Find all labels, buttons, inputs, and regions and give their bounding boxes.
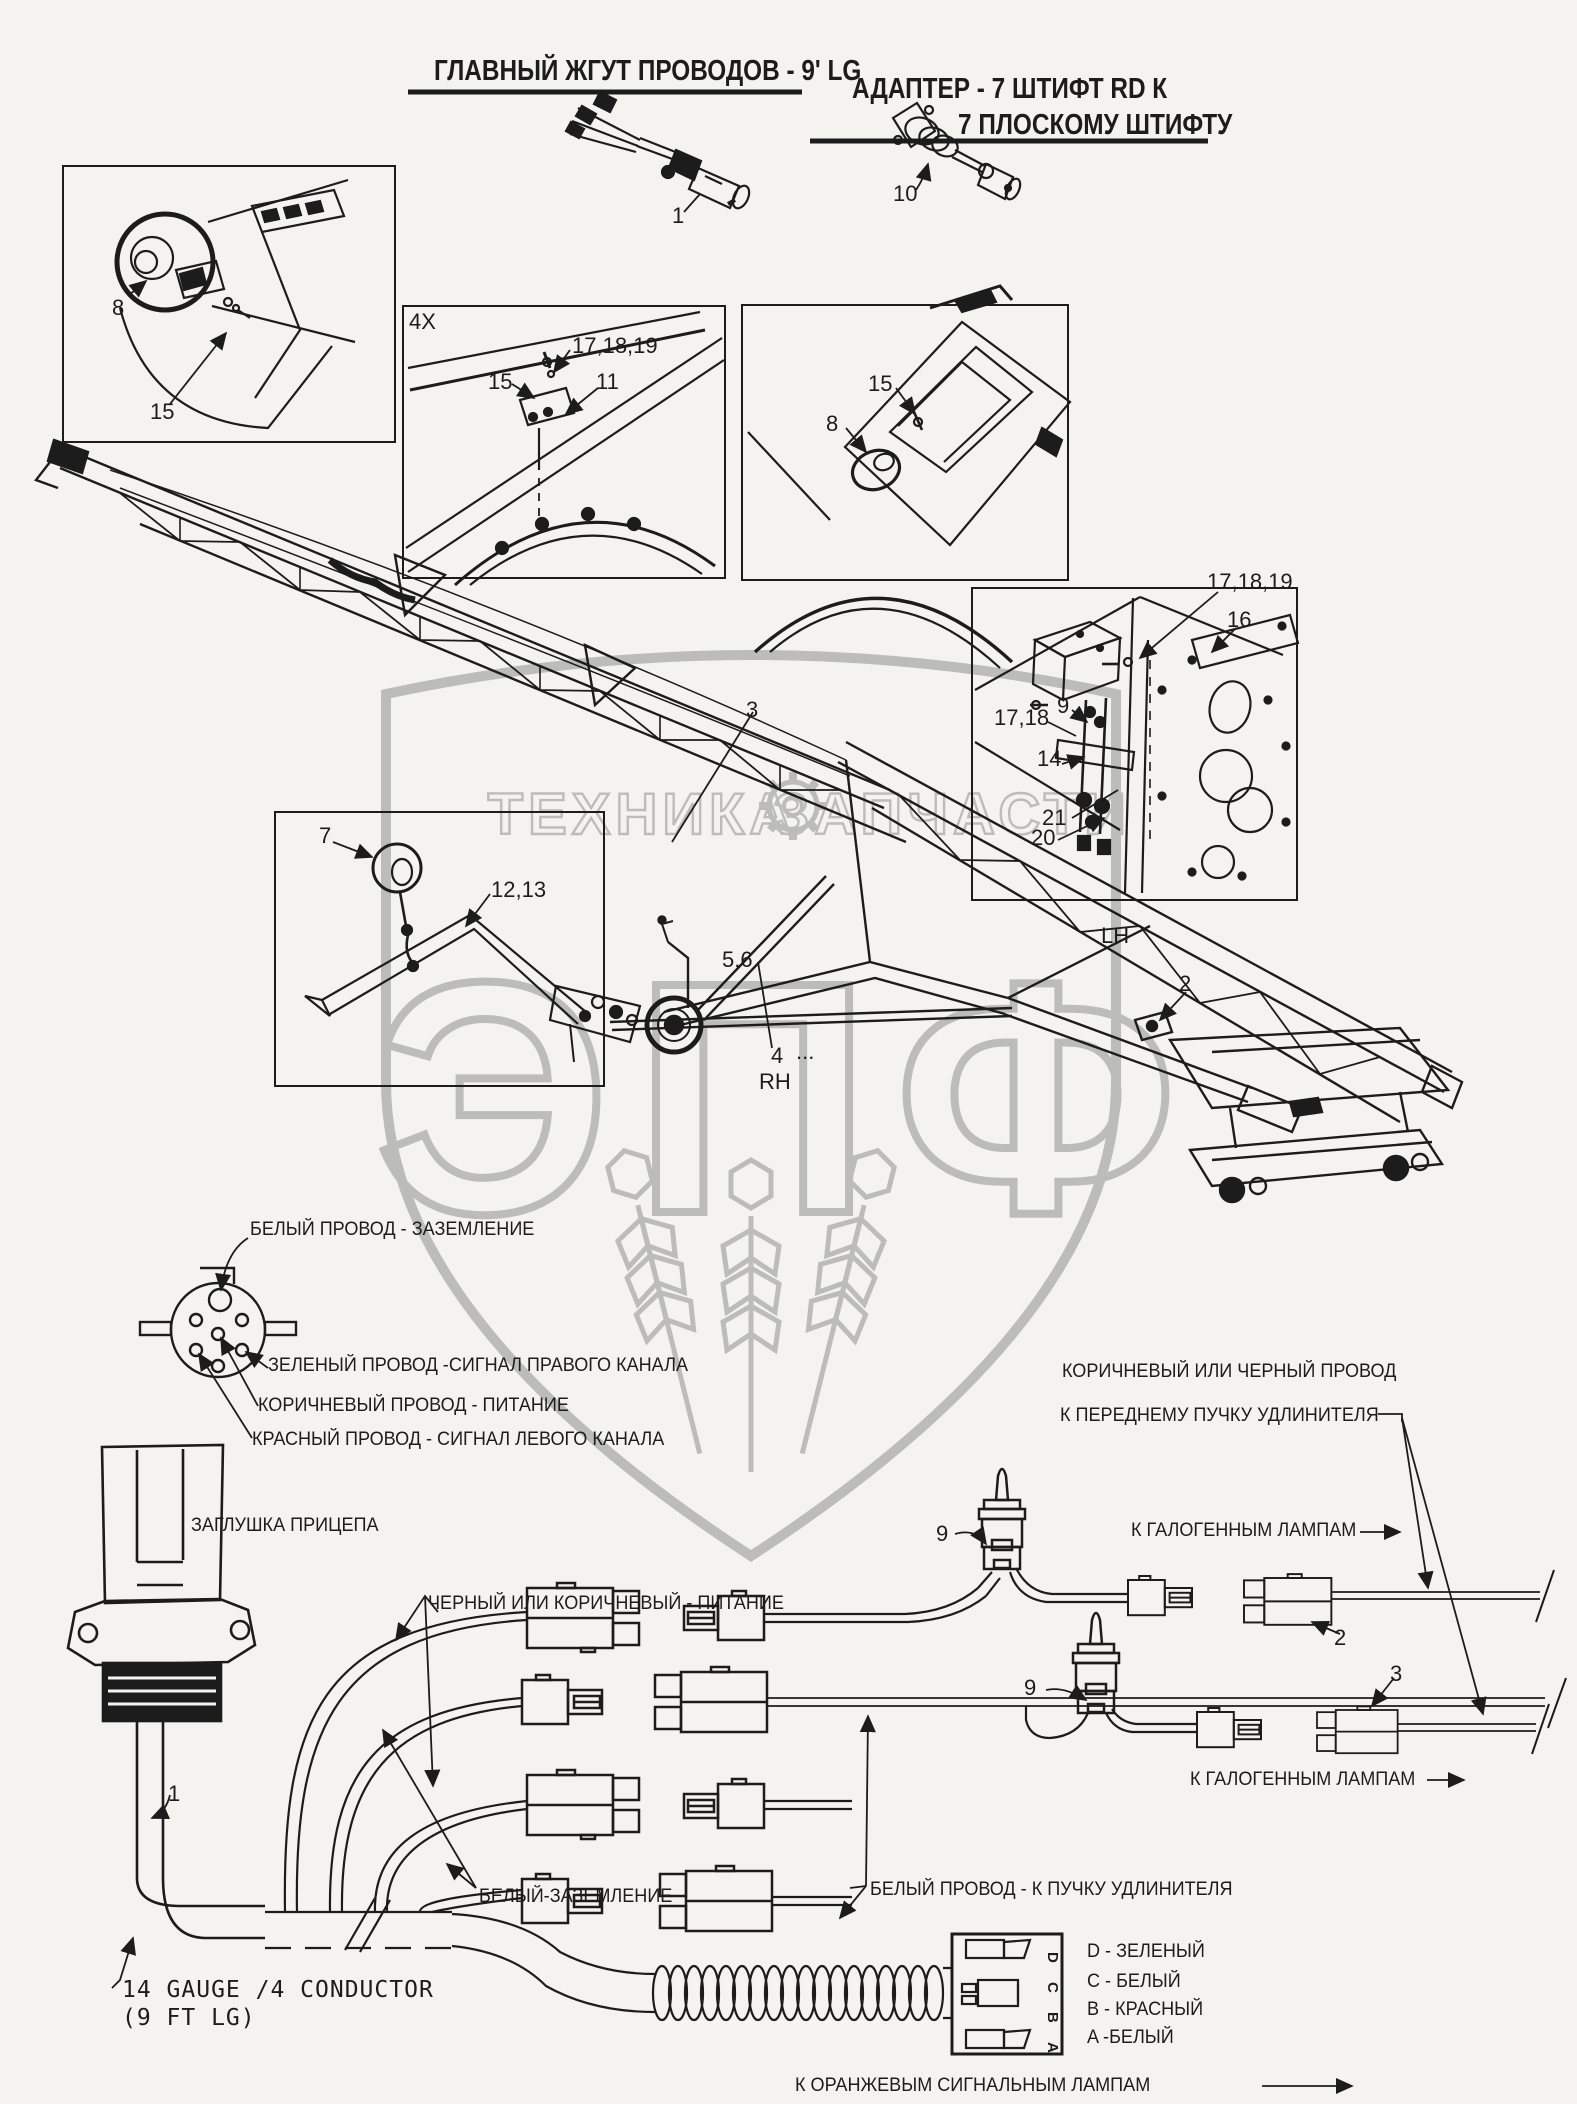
- gauge-label-1: 14 GAUGE /4 CONDUCTOR: [122, 1978, 434, 2002]
- plug-pin-b-label: B - КРАСНЫЙ: [1087, 2000, 1203, 2020]
- box-c-art: [748, 286, 1070, 668]
- plug-pin-c-label: C - БЕЛЫЙ: [1087, 1972, 1181, 1992]
- pinout-green-label: ЗЕЛЕНЫЙ ПРОВОД -СИГНАЛ ПРАВОГО КАНАЛА: [268, 1356, 688, 1376]
- harness-bundle-art: [265, 1612, 655, 2012]
- orange-lamps-label: К ОРАНЖЕВЫМ СИГНАЛЬНЫМ ЛАМПАМ: [795, 2076, 1150, 2096]
- plug-pin-letter-d: D: [1044, 1952, 1061, 1963]
- callout-9-switch2: 9: [1024, 1676, 1036, 1699]
- box-b-art: [406, 312, 724, 585]
- trailer-plug-label: ЗАГЛУШКА ПРИЦЕПА: [191, 1516, 379, 1536]
- ground-wire-label: БЕЛЫЙ-ЗАЗЕМЛЕНИЕ: [479, 1887, 672, 1907]
- callout-9-switch1: 9: [936, 1522, 948, 1545]
- callout-15-box-c: 15: [868, 372, 892, 395]
- callout-8-box-a: 8: [112, 296, 124, 319]
- title-adapter-line1: АДАПТЕР - 7 ШТИФТ RD К: [852, 74, 1167, 104]
- box-d-art: [975, 592, 1298, 893]
- callout-3-connector: 3: [1390, 1662, 1402, 1685]
- callout-8-box-c: 8: [826, 412, 838, 435]
- halogen-bottom-label: К ГАЛОГЕННЫМ ЛАМПАМ: [1190, 1770, 1415, 1790]
- detail-box-d: [972, 588, 1297, 900]
- callout-16-box-d: 16: [1227, 608, 1251, 631]
- gauge-label-2: (9 FT LG): [122, 2006, 256, 2030]
- plug-pin-letter-a: A: [1044, 2042, 1061, 2053]
- callout-1718-box-d: 17,18: [994, 706, 1049, 729]
- callout-11-box-b: 11: [596, 370, 619, 393]
- parts-diagram-page: ЭПФ ТЕХНИКА ЗАПЧАСТИ: [0, 0, 1577, 2104]
- wiring-rows-art: [522, 1469, 1566, 1931]
- pinout-red-label: КРАСНЫЙ ПРОВОД - СИГНАЛ ЛЕВОГО КАНАЛА: [252, 1430, 664, 1450]
- callout-15-box-b: 15: [488, 370, 512, 393]
- coil-connector-art: D C B A: [653, 1934, 1062, 2054]
- watermark-left-text: ТЕХНИКА: [488, 782, 797, 847]
- callout-9-box-d: 9: [1057, 694, 1069, 717]
- callout-2-machine: 2: [1179, 972, 1191, 995]
- brown-black-label-1: КОРИЧНЕВЫЙ ИЛИ ЧЕРНЫЙ ПРОВОД: [1062, 1362, 1396, 1382]
- halogen-top-label: К ГАЛОГЕННЫМ ЛАМПАМ: [1131, 1521, 1356, 1541]
- callout-15-box-a: 15: [150, 400, 174, 423]
- plug-pin-letter-b: B: [1044, 2012, 1061, 2023]
- callout-3-boom: 3: [746, 698, 758, 721]
- power-wire-label: ЧЕРНЫЙ ИЛИ КОРИЧНЕВЫЙ - ПИТАНИЕ: [428, 1594, 784, 1614]
- box-a-art: [117, 180, 355, 428]
- callout-171819-box-d: 17,18,19: [1207, 570, 1293, 593]
- callout-56-frame: 5,6: [722, 948, 753, 971]
- bottom-leaders: [383, 1414, 1483, 2086]
- callout-7-box-e: 7: [319, 824, 331, 847]
- callout-10-top: 10: [893, 182, 917, 205]
- callout-lh: LH: [1101, 924, 1129, 947]
- callout-2-connector: 2: [1334, 1626, 1346, 1649]
- coil-cord: [653, 1966, 943, 2020]
- callout-rh: RH: [759, 1070, 791, 1093]
- title-main-harness: ГЛАВНЫЙ ЖГУТ ПРОВОДОВ - 9' LG: [434, 56, 861, 86]
- pinout-brown-label: КОРИЧНЕВЫЙ ПРОВОД - ПИТАНИЕ: [258, 1396, 569, 1416]
- brown-black-label-2: К ПЕРЕДНЕМУ ПУЧКУ УДЛИНИТЕЛЯ: [1060, 1406, 1379, 1426]
- callout-1-top: 1: [672, 204, 684, 227]
- callout-1-cable: 1: [168, 1782, 180, 1805]
- callout-4-frame: 4: [771, 1044, 783, 1067]
- plug-pin-a-label: A -БЕЛЫЙ: [1087, 2028, 1174, 2048]
- harness-item-art: [566, 92, 752, 211]
- pinout-white-label: БЕЛЫЙ ПРОВОД - ЗАЗЕМЛЕНИЕ: [250, 1220, 534, 1240]
- callout-171819-box-b: 17,18,19: [572, 334, 658, 357]
- plug-pin-letter-c: C: [1044, 1982, 1061, 1993]
- callout-1213-box-e: 12,13: [491, 878, 546, 901]
- plug-pin-d-label: D - ЗЕЛЕНЫЙ: [1087, 1942, 1205, 1962]
- callout-20-box-d: 20: [1031, 826, 1055, 849]
- callout-14-box-d: 14: [1037, 747, 1061, 770]
- title-adapter-line2: 7 ПЛОСКОМУ ШТИФТУ: [958, 110, 1232, 140]
- white-ext-label: БЕЛЫЙ ПРОВОД - К ПУЧКУ УДЛИНИТЕЛЯ: [870, 1880, 1233, 1900]
- callout-dots: ...: [796, 1040, 814, 1063]
- callout-4x: 4X: [409, 310, 436, 333]
